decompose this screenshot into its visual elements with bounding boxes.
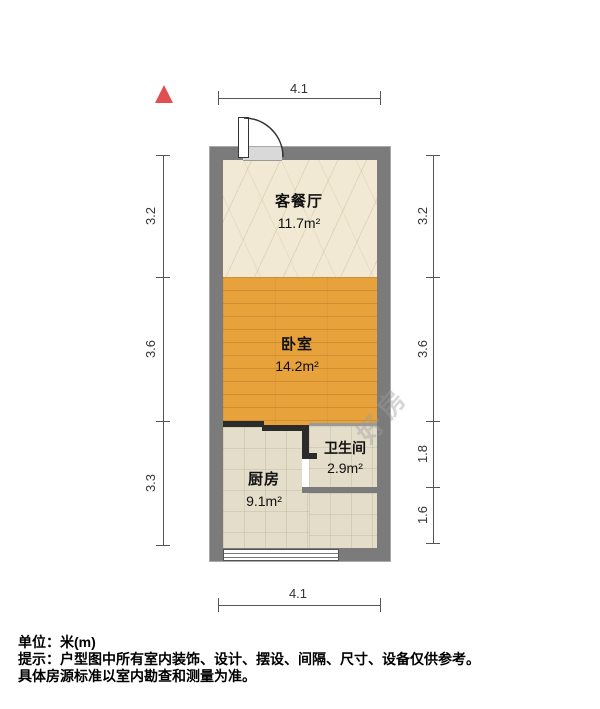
room-area-bathroom: 2.9m² — [310, 460, 380, 476]
room-name-bedroom: 卧室 — [247, 333, 347, 354]
room-area-kitchen: 9.1m² — [214, 493, 314, 509]
room-label-living-dining: 客餐厅 11.7m² — [249, 190, 349, 231]
dimension-line-right — [433, 155, 434, 543]
window-bottom — [223, 549, 339, 561]
dimension-tick — [156, 277, 170, 278]
room-name-living-dining: 客餐厅 — [249, 190, 349, 211]
footer-notice-line: 提示：户型图中所有室内装饰、设计、摆设、间隔、尺寸、设备仅供参考。 — [18, 651, 583, 668]
dimension-label-top: 4.1 — [284, 81, 314, 97]
dimension-line-top — [218, 98, 380, 99]
dimension-label-right-2: 3.6 — [415, 334, 431, 364]
window-pane-line — [224, 553, 338, 554]
dimension-label-left-1: 3.2 — [143, 201, 159, 231]
dimension-tick — [426, 155, 440, 156]
dimension-tick — [380, 91, 381, 105]
dimension-tick — [156, 421, 170, 422]
dimension-tick — [218, 91, 219, 105]
interior-wall-kitchen-left — [223, 421, 264, 427]
dimension-label-left-2: 3.6 — [143, 334, 159, 364]
dimension-line-left — [163, 155, 164, 545]
dimension-tick — [218, 598, 219, 612]
dimension-tick — [426, 487, 440, 488]
floorplan-page: 4.1 4.1 3.2 3.6 3.3 3.2 3.6 1.8 1.6 客餐厅 … — [0, 0, 600, 709]
room-area-living-dining: 11.7m² — [249, 215, 349, 231]
footer-notice-line2: 具体房源标准以室内勘查和测量为准。 — [18, 668, 583, 685]
dimension-label-right-1: 3.2 — [415, 201, 431, 231]
dimension-tick — [380, 598, 381, 612]
entrance-door-arc-icon — [238, 108, 290, 160]
footer-disclaimer: 单位：米(m) 提示：户型图中所有室内装饰、设计、摆设、间隔、尺寸、设备仅供参考… — [18, 634, 583, 685]
dimension-tick — [426, 543, 440, 544]
dimension-tick — [156, 545, 170, 546]
dimension-tick — [426, 421, 440, 422]
footer-unit-line: 单位：米(m) — [18, 634, 583, 651]
dimension-tick — [156, 155, 170, 156]
dimension-line-bottom — [218, 605, 380, 606]
room-name-kitchen: 厨房 — [214, 468, 314, 489]
room-area-bedroom: 14.2m² — [247, 358, 347, 374]
dimension-label-right-3: 1.8 — [415, 439, 431, 469]
dimension-tick — [426, 277, 440, 278]
bathroom-wall-bottom — [302, 487, 382, 493]
dimension-label-right-4: 1.6 — [415, 500, 431, 530]
dimension-label-left-3: 3.3 — [143, 468, 159, 498]
dimension-label-bottom: 4.1 — [283, 586, 313, 602]
window-pane-line — [224, 557, 338, 558]
room-label-bedroom: 卧室 14.2m² — [247, 333, 347, 374]
room-label-kitchen: 厨房 9.1m² — [214, 468, 314, 509]
north-arrow-icon — [155, 85, 173, 103]
